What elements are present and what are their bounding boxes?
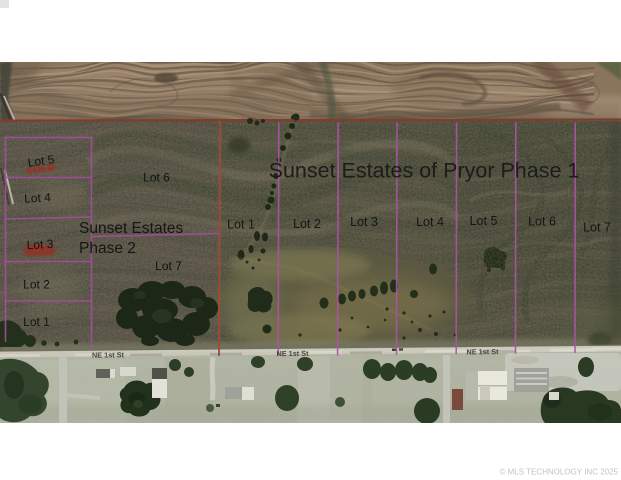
svg-text:Lot 6: Lot 6	[143, 171, 170, 185]
svg-text:Phase 2: Phase 2	[79, 240, 136, 257]
svg-text:Sunset Estates of Pryor Phase: Sunset Estates of Pryor Phase 1	[269, 159, 580, 183]
svg-text:Lot 7: Lot 7	[155, 259, 182, 273]
svg-text:Lot 4: Lot 4	[416, 215, 444, 229]
svg-text:Lot 3: Lot 3	[26, 237, 54, 252]
svg-text:Lot 2: Lot 2	[293, 217, 321, 231]
svg-text:Lot 3: Lot 3	[350, 215, 378, 229]
svg-text:Lot 1: Lot 1	[23, 315, 50, 329]
svg-text:NE 1st St: NE 1st St	[92, 350, 125, 359]
svg-text:NE 1st St: NE 1st St	[276, 349, 309, 358]
svg-text:Lot 2: Lot 2	[23, 278, 50, 292]
svg-text:Lot 1: Lot 1	[227, 218, 255, 232]
svg-text:NE 1st St: NE 1st St	[466, 347, 499, 356]
svg-text:Lot 6: Lot 6	[528, 215, 556, 229]
svg-text:© MLS TECHNOLOGY INC 2025: © MLS TECHNOLOGY INC 2025	[499, 468, 618, 477]
svg-text:Sunset Estates: Sunset Estates	[79, 220, 184, 237]
svg-text:Lot 7: Lot 7	[583, 221, 611, 235]
svg-text:Lot 5: Lot 5	[470, 214, 498, 228]
svg-text:Lot 4: Lot 4	[24, 190, 52, 205]
